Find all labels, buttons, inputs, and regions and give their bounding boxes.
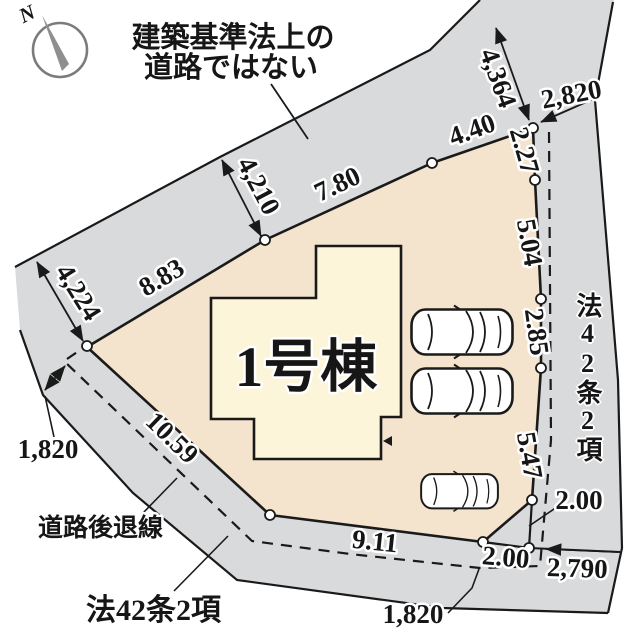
setback-line-label: 道路後退線 bbox=[38, 513, 163, 542]
dim-911-label: 9.11 bbox=[351, 524, 400, 559]
car-icon-3 bbox=[421, 471, 498, 511]
dim-2790-label: 2,790 bbox=[546, 552, 608, 584]
car-icon-1 bbox=[412, 306, 513, 359]
site-plan: N 建築基準法上の 道路ではない 道路後退線 法42条2項 1号棟 4,364 … bbox=[0, 0, 640, 640]
compass-icon: N bbox=[14, 0, 87, 77]
compass-north-label: N bbox=[14, 0, 40, 28]
not-road-note-line2: 道路ではない bbox=[144, 51, 318, 84]
road-type-bottom-label: 法42条2項 bbox=[86, 594, 222, 627]
not-road-note-line1: 建築基準法上の bbox=[131, 20, 334, 54]
building-name-label: 1号棟 bbox=[235, 336, 378, 399]
car-icon-2 bbox=[412, 365, 513, 418]
road-type-right-label: 法42条2項 bbox=[569, 292, 606, 463]
site-plan-drawing: N 建築基準法上の 道路ではない 道路後退線 法42条2項 1号棟 4,364 … bbox=[0, 0, 640, 640]
dim-200-right-label: 2.00 bbox=[555, 485, 602, 515]
dim-1820-bottom-label: 1,820 bbox=[383, 599, 444, 629]
dim-200-bottom-label: 2.00 bbox=[481, 540, 531, 574]
dim-1820-left-label: 1,820 bbox=[18, 434, 79, 464]
